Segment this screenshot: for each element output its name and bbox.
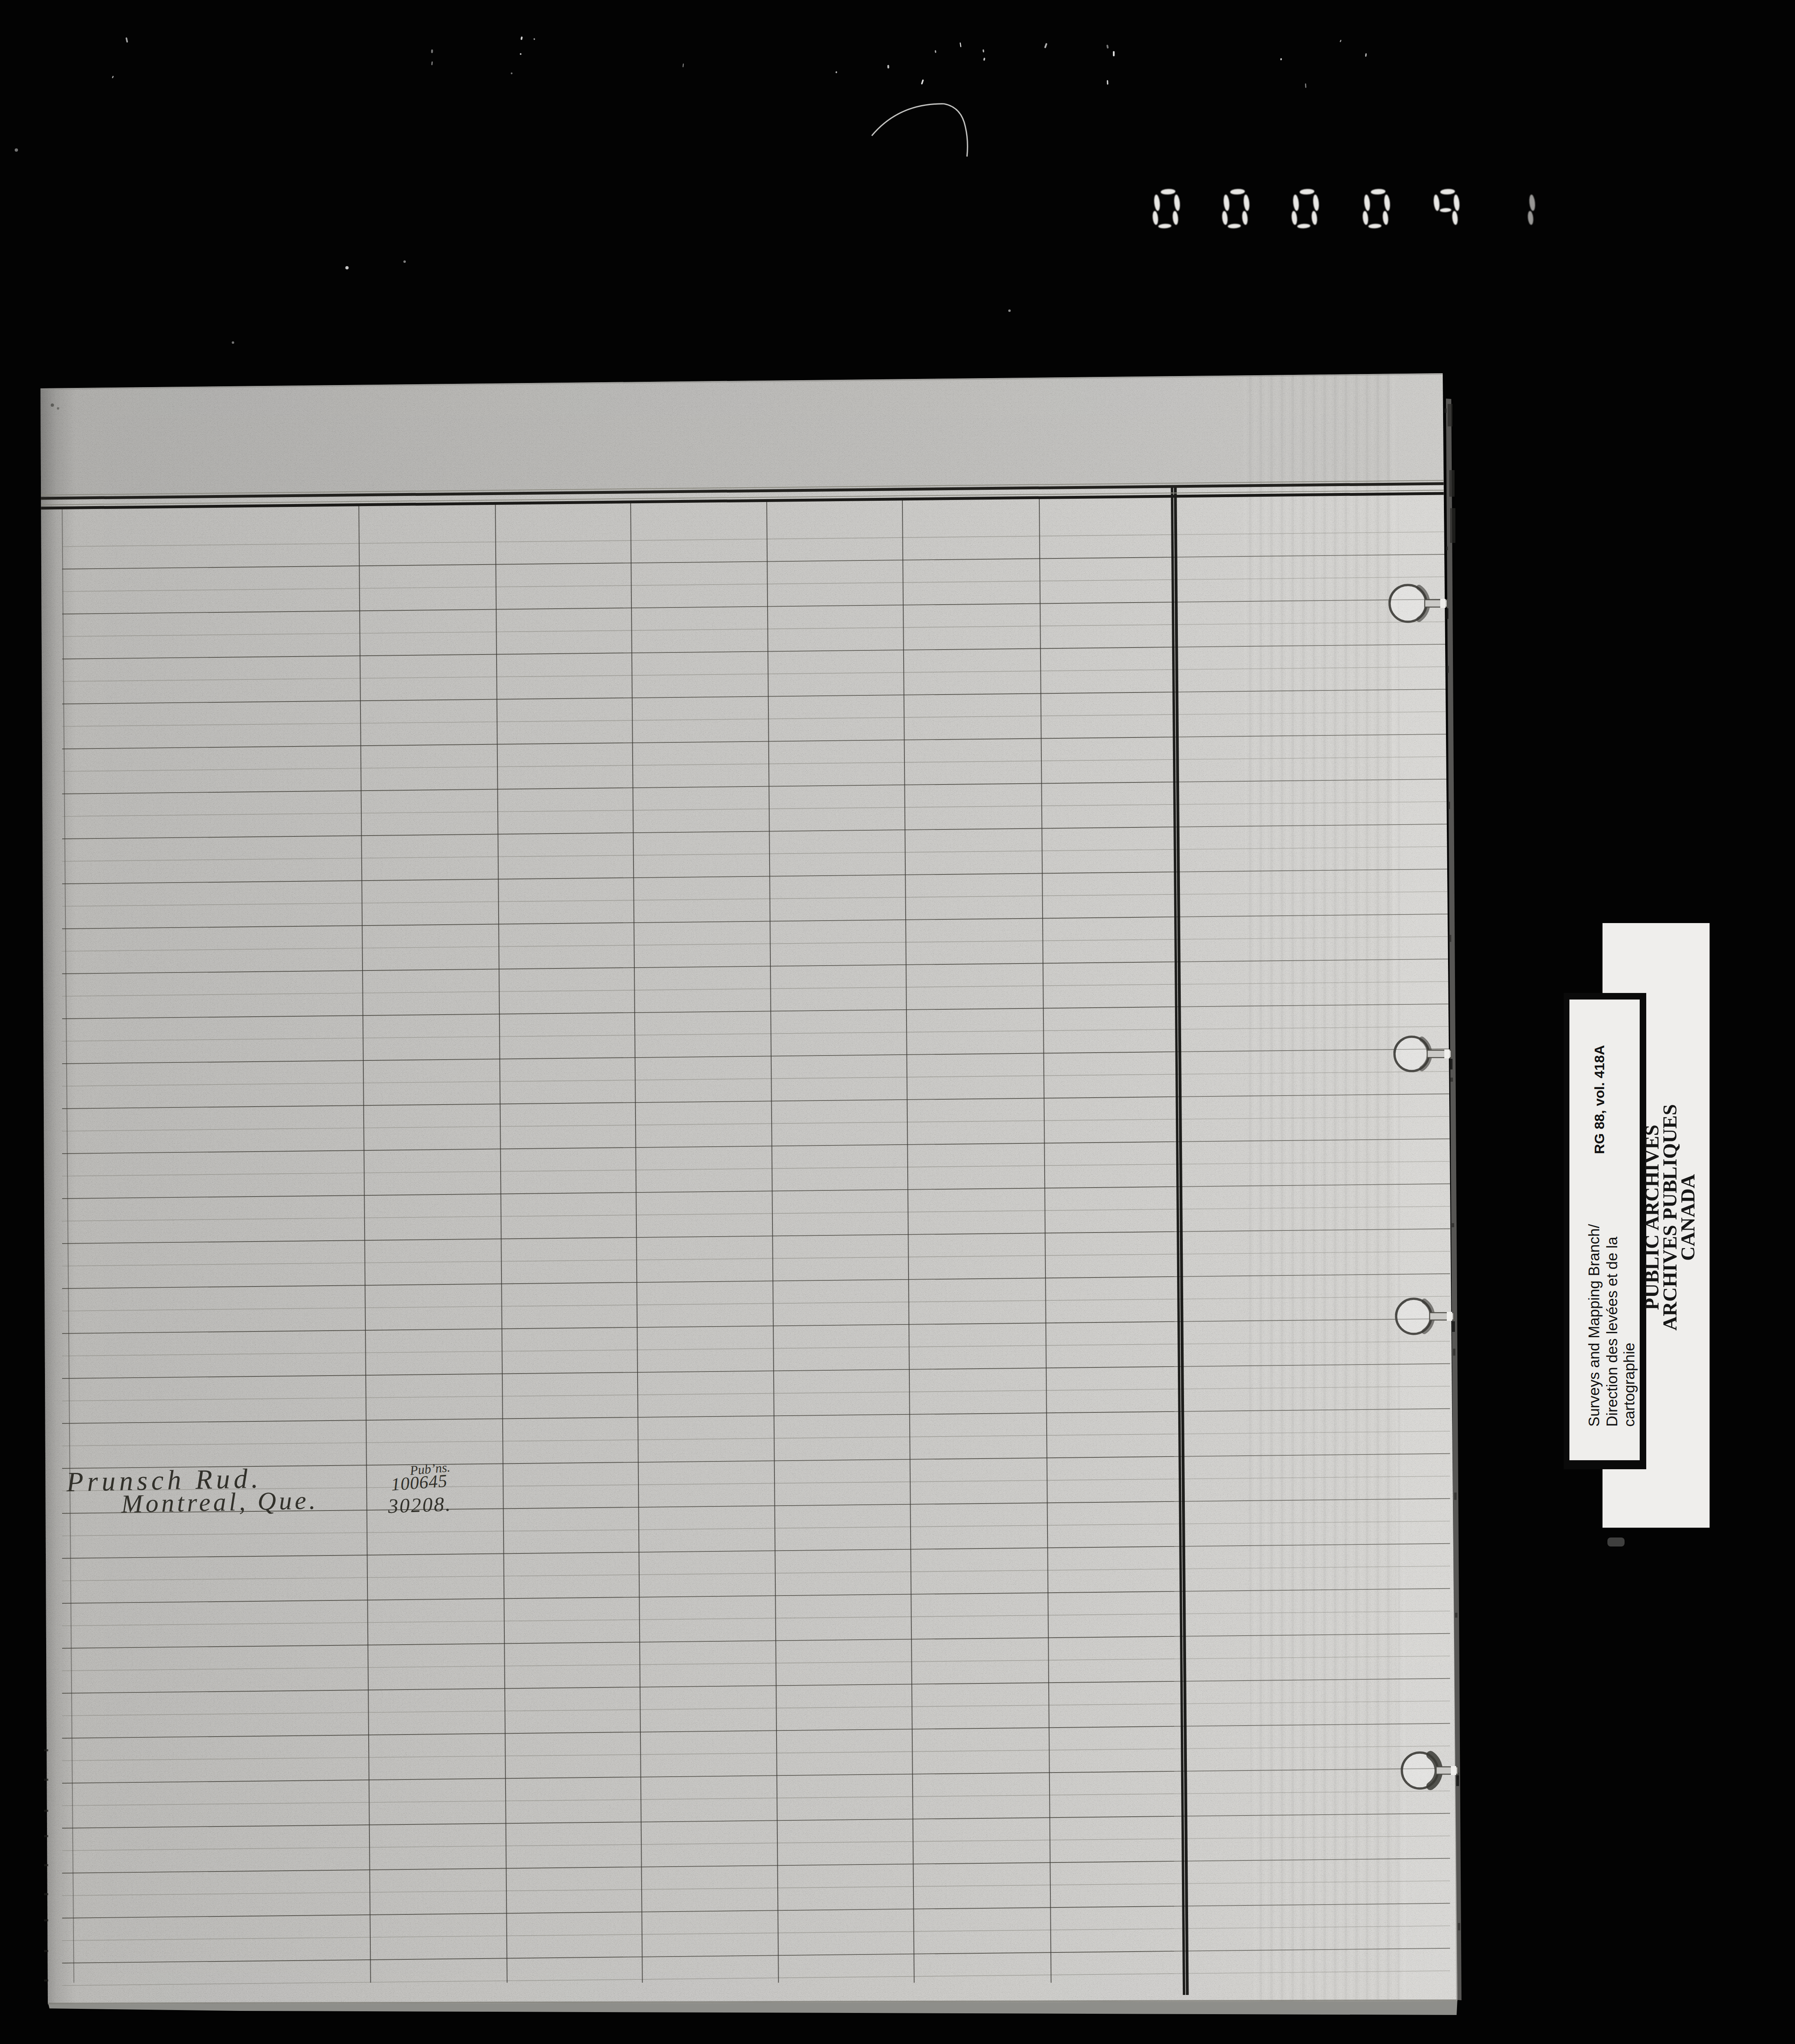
svg-text:Montreal, Que.: Montreal, Que. (121, 1486, 319, 1518)
svg-text:100645: 100645 (390, 1470, 448, 1495)
svg-text:RG 88, vol. 418A: RG 88, vol. 418A (1591, 1045, 1607, 1154)
svg-text:cartographie: cartographie (1621, 1342, 1638, 1427)
svg-text:Surveys and Mapping Branch/: Surveys and Mapping Branch/ (1586, 1224, 1603, 1427)
svg-text:Direction des levées et de la: Direction des levées et de la (1604, 1237, 1620, 1427)
svg-text:CANADA: CANADA (1676, 1174, 1699, 1261)
svg-text:30208.: 30208. (387, 1493, 452, 1517)
